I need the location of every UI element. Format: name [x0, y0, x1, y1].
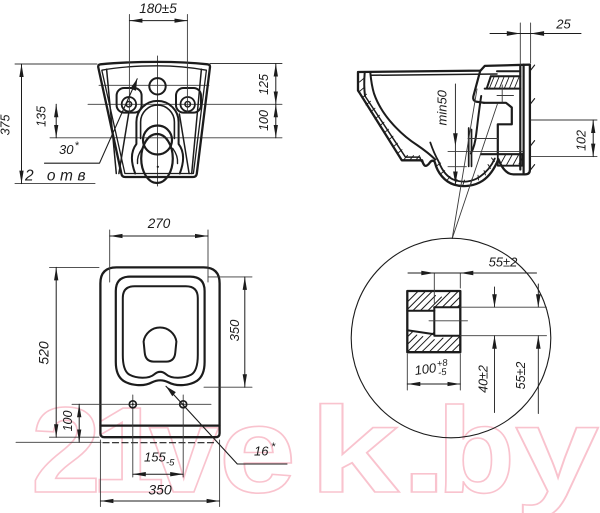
svg-text:2 отв: 2 отв [24, 168, 90, 185]
svg-text:102: 102 [575, 130, 589, 151]
svg-text:40±2: 40±2 [477, 365, 491, 393]
svg-text:55±2: 55±2 [489, 255, 519, 270]
svg-text:25: 25 [555, 17, 571, 32]
svg-text:350: 350 [148, 482, 172, 498]
svg-text:180±5: 180±5 [139, 1, 177, 16]
svg-text:135: 135 [35, 106, 49, 127]
svg-text:21vek.by: 21vek.by [31, 382, 599, 513]
svg-text:-5: -5 [166, 458, 175, 469]
svg-text:100: 100 [414, 360, 438, 378]
svg-text:375: 375 [0, 115, 13, 136]
svg-text:520: 520 [36, 341, 52, 365]
svg-text:16: 16 [254, 444, 269, 459]
svg-text:min50: min50 [435, 89, 450, 125]
svg-text:*: * [271, 441, 276, 453]
svg-text:100: 100 [257, 110, 271, 131]
svg-text:350: 350 [227, 319, 242, 341]
svg-text:125: 125 [257, 74, 271, 95]
svg-text:*: * [75, 140, 80, 152]
svg-text:100: 100 [61, 411, 75, 432]
svg-text:30: 30 [59, 142, 74, 157]
svg-text:270: 270 [147, 216, 171, 231]
svg-text:55±2: 55±2 [514, 362, 528, 390]
svg-text:155: 155 [144, 450, 166, 465]
